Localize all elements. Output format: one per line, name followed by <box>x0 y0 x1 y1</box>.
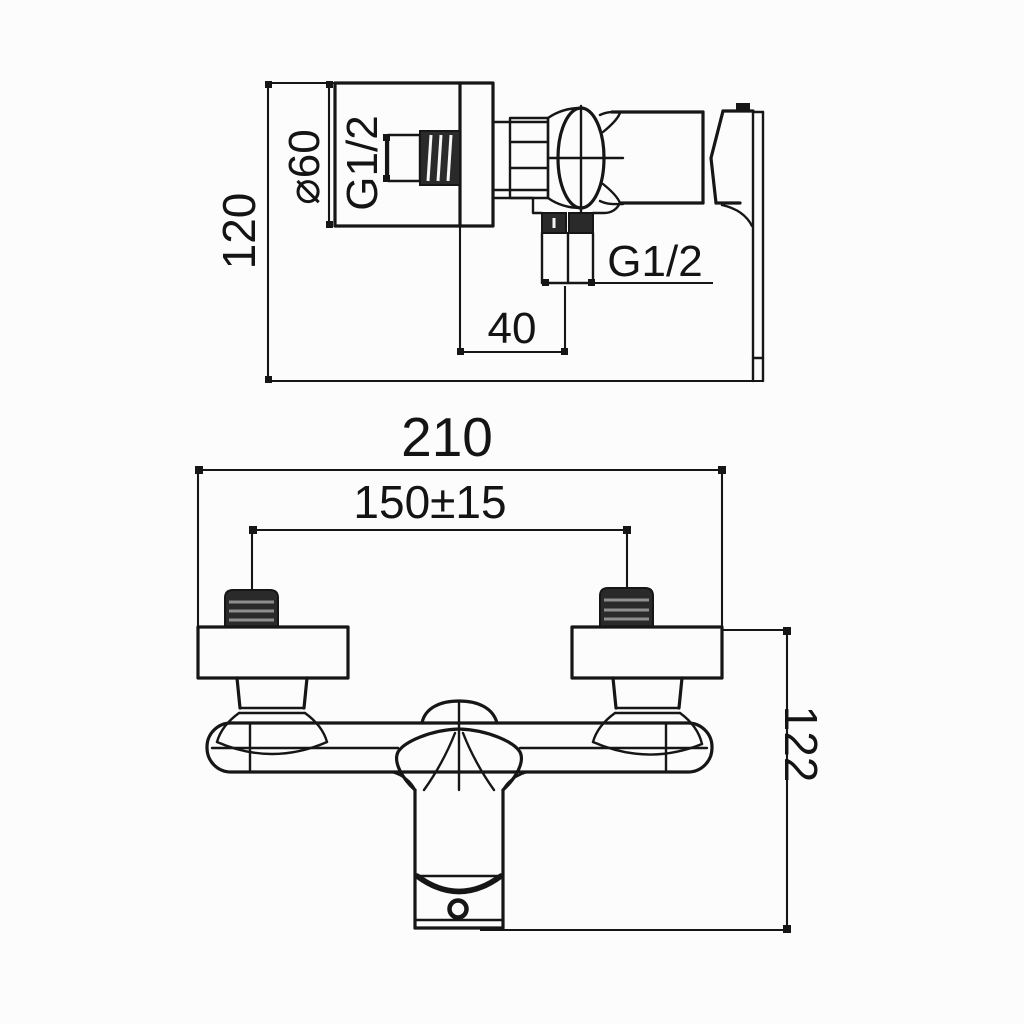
eccentric-left-edge <box>711 111 723 203</box>
wall-stub-tip <box>388 135 420 181</box>
eccentric-fillet <box>722 205 752 226</box>
eccentric-nut-left <box>217 678 327 754</box>
dim-label-outlet-offset: 40 <box>488 304 537 353</box>
side-view: 120 ⌀60 G1/2 <box>213 81 763 383</box>
dim-label-height: 120 <box>213 193 265 270</box>
dim-label-overall-width: 210 <box>401 406 493 468</box>
technical-drawing-page: 120 ⌀60 G1/2 <box>0 0 1024 1024</box>
stub-body <box>600 588 653 627</box>
inlet-stub-left <box>225 590 278 627</box>
spout-screw-hole <box>450 901 467 918</box>
outlet-ledge-left <box>493 198 542 213</box>
dim-marker <box>588 279 595 286</box>
dim-marker <box>265 81 272 88</box>
side-hex-nut <box>510 118 548 198</box>
outlet-thread-right <box>569 213 593 233</box>
nut-edge <box>613 678 616 708</box>
faucet-dimension-drawing: 120 ⌀60 G1/2 <box>0 0 1024 1024</box>
dim-marker <box>561 348 568 355</box>
skirt-flare <box>680 713 702 744</box>
dim-label-wall-thread: G1/2 <box>338 115 387 210</box>
dim-label-flange-diameter: ⌀60 <box>280 129 329 204</box>
inlet-stub-right <box>600 588 653 627</box>
nut-edge <box>304 678 307 708</box>
handle-shroud-curve <box>603 113 620 132</box>
nut-edge <box>679 678 682 708</box>
set-screw <box>736 103 750 111</box>
front-flange-right <box>572 627 722 678</box>
skirt-flare <box>593 713 615 742</box>
nut-edge <box>237 678 240 708</box>
dim-marker <box>783 627 791 635</box>
bonnet-inner-left <box>424 733 455 790</box>
dim-marker <box>265 376 272 383</box>
dim-marker <box>249 526 257 534</box>
dim-label-outlet-thread: G1/2 <box>607 237 702 286</box>
front-flange-left <box>198 627 348 678</box>
dim-marker <box>542 279 549 286</box>
skirt-flare <box>217 713 239 742</box>
dim-marker <box>457 348 464 355</box>
dim-marker <box>195 466 203 474</box>
skirt-flare <box>305 713 327 742</box>
dim-label-inlet-spacing: 150±15 <box>353 476 506 528</box>
dim-marker <box>623 526 631 534</box>
dim-marker <box>783 925 791 933</box>
dim-marker <box>326 81 333 88</box>
eccentric-nut-right <box>593 678 702 755</box>
bonnet-inner-right <box>463 733 494 790</box>
dim-label-overall-height: 122 <box>775 706 827 783</box>
dim-marker <box>718 466 726 474</box>
handle-shroud-curve <box>603 184 620 203</box>
dim-marker <box>326 221 333 228</box>
front-view: 210 150±15 <box>195 406 827 933</box>
aerator-arc <box>417 876 501 892</box>
bonnet-outer-left <box>397 729 459 790</box>
